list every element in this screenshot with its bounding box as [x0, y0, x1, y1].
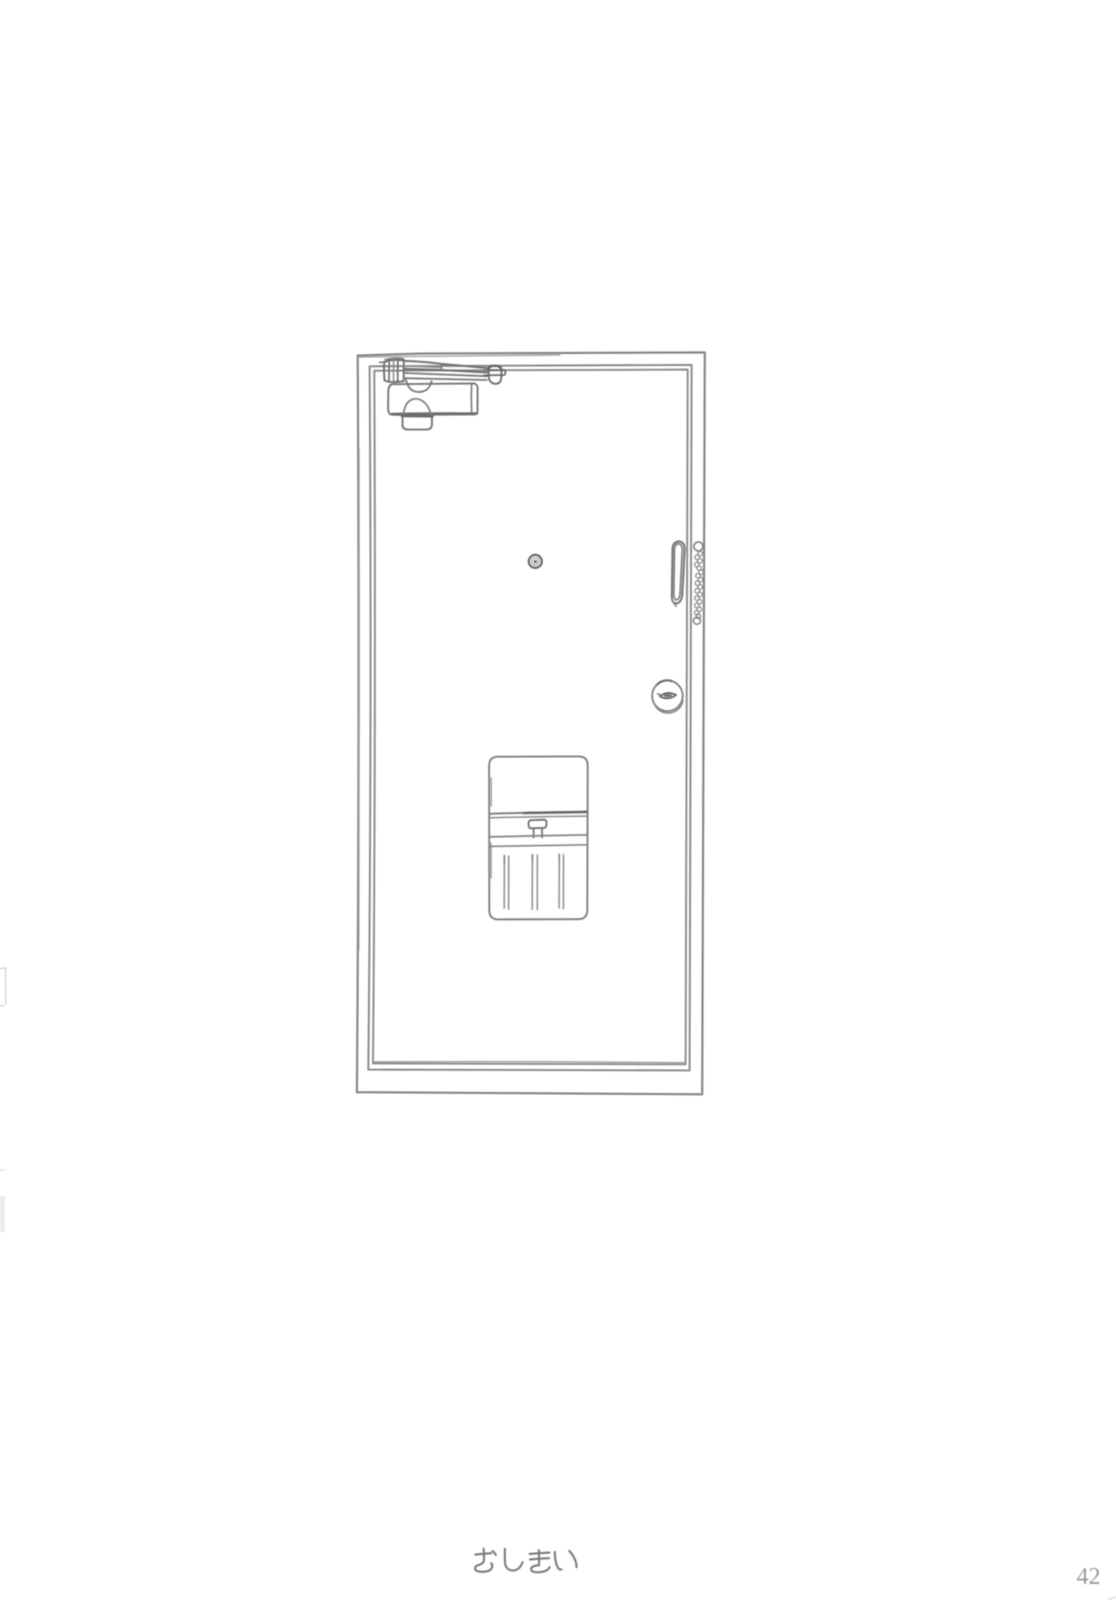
svg-text:42: 42	[1077, 1564, 1101, 1590]
